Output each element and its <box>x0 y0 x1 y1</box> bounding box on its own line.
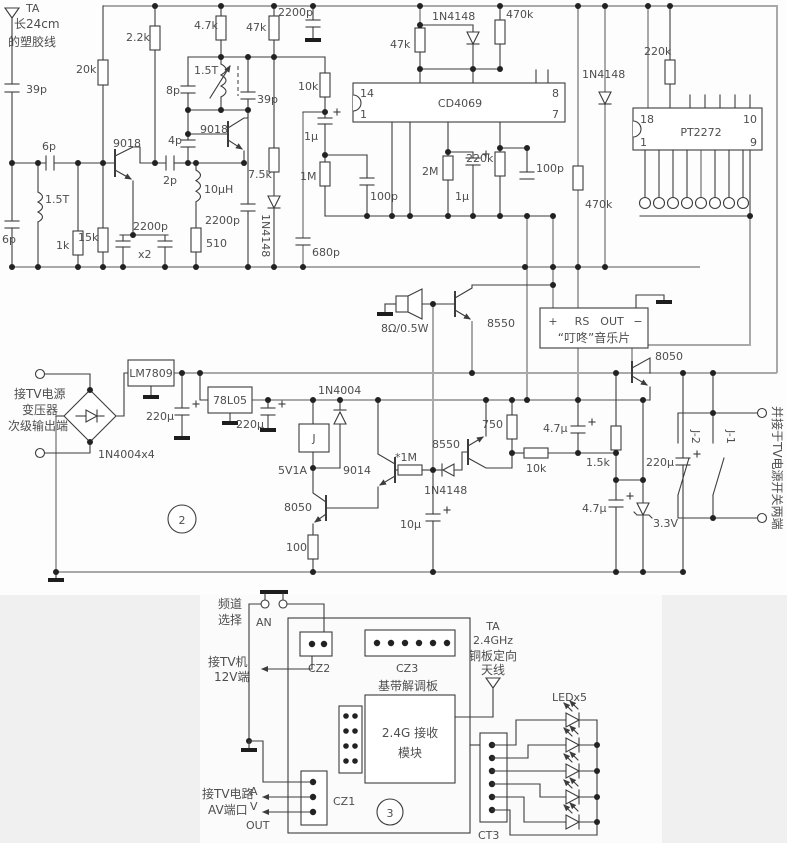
label-ct3: CT3 <box>478 829 499 842</box>
ic-pt2272-pin10: 10 <box>743 113 757 126</box>
label-1k: 1k <box>56 239 70 252</box>
label-out: OUT <box>246 819 270 832</box>
label-bridge: 1N4004x4 <box>98 448 155 461</box>
label-section2-num: 2 <box>179 514 186 527</box>
label-2k2: 2.2k <box>126 31 150 44</box>
label-1m-star: *1M <box>395 451 417 464</box>
label-channel-1: 频道 <box>218 597 242 611</box>
label-ant-wire: 的塑胶线 <box>8 34 56 49</box>
label-q9018-2: 9018 <box>200 123 228 136</box>
circle-2: 2 <box>168 505 196 533</box>
label-220u-b: 220µ <box>236 418 264 431</box>
label-av-1: 接TV电路 <box>202 786 254 801</box>
label-680p: 680p <box>312 246 340 259</box>
music-pin-rs: RS <box>575 315 590 328</box>
label-100: 100 <box>286 541 307 554</box>
label-a: A <box>250 785 258 798</box>
label-510: 510 <box>206 237 227 250</box>
label-ta1: TA <box>25 2 40 15</box>
label-1n4004: 1N4004 <box>318 384 361 397</box>
label-antenna-word: 天线 <box>481 663 505 677</box>
label-10u: 10µ <box>400 518 421 531</box>
label-2m: 2M <box>422 165 439 178</box>
label-speaker: 8Ω/0.5W <box>381 322 429 335</box>
label-1u-a: 1µ <box>304 130 318 143</box>
label-220u-a: 220µ <box>146 410 174 423</box>
label-1n4148-b: 1N4148 <box>432 10 475 23</box>
label-6p-b: 6p <box>2 233 16 246</box>
ic-pt2272-pin1: 1 <box>640 136 647 149</box>
music-chip-name: “叮咚”音乐片 <box>558 330 630 345</box>
label-q9018-1: 9018 <box>113 137 141 150</box>
label-relay-rating: 5V1A <box>278 464 308 477</box>
label-47k-a: 47k <box>246 21 267 34</box>
label-x2: x2 <box>138 248 152 261</box>
label-1n4148-d: 1N4148 <box>424 484 467 497</box>
label-8p: 8p <box>166 84 180 97</box>
label-ant-len: 长24cm <box>14 17 60 31</box>
circuit-schematic-page: TA 长24cm 的塑胶线 39p 6p 6p 1.5T 1k 20k 15k <box>0 0 787 843</box>
label-20k: 20k <box>76 63 97 76</box>
label-ledx5: LEDx5 <box>552 691 587 704</box>
label-cz3: CZ3 <box>396 662 418 675</box>
label-4k7: 4.7k <box>194 19 218 32</box>
label-module-1: 2.4G 接收 <box>382 725 438 740</box>
label-100p-a: 100p <box>370 190 398 203</box>
label-220k-a: 220k <box>466 152 494 165</box>
label-1n4148-a: 1N4148 <box>259 214 272 257</box>
ic-pt2272-name: PT2272 <box>680 126 721 139</box>
label-6p-a: 6p <box>42 140 56 153</box>
label-v: V <box>250 800 258 813</box>
label-100p-b: 100p <box>536 162 564 175</box>
music-pin-plus: + <box>548 315 557 328</box>
circuit-schematic: TA 长24cm 的塑胶线 39p 6p 6p 1.5T 1k 20k 15k <box>0 0 787 843</box>
ic-cd4069-pin7: 7 <box>552 108 559 121</box>
label-7k5: 7.5k <box>248 168 272 181</box>
label-1n4148-c: 1N4148 <box>582 68 625 81</box>
label-lm7809: LM7809 <box>129 367 173 380</box>
label-j2: J-2 <box>689 429 702 444</box>
label-8050-left: 8050 <box>284 501 312 514</box>
label-in3: 次级输出端 <box>8 418 68 433</box>
label-47k-b: 47k <box>390 38 411 51</box>
label-15k: 15k <box>78 231 99 244</box>
label-10uh: 10µH <box>204 183 233 196</box>
label-10k-a: 10k <box>298 80 319 93</box>
label-q8550-music: 8550 <box>487 317 515 330</box>
label-8550-b: 8550 <box>432 438 460 451</box>
label-9014: 9014 <box>343 464 371 477</box>
label-39p-a: 39p <box>26 83 47 96</box>
label-4u7-a: 4.7µ <box>543 422 568 435</box>
label-ta2: TA <box>485 620 500 633</box>
label-470k-a: 470k <box>506 8 534 21</box>
label-copper: 铜板定向 <box>469 648 517 663</box>
label-an: AN <box>256 616 272 629</box>
label-220k-b: 220k <box>644 45 672 58</box>
ic-cd4069-pin8: 8 <box>552 87 559 100</box>
label-470k-b: 470k <box>585 198 613 211</box>
label-zener-3v3: 3.3V <box>653 517 678 530</box>
label-2p: 2p <box>163 174 177 187</box>
label-tv12-2: 12V端 <box>214 670 249 684</box>
label-1k5: 1.5k <box>586 456 610 469</box>
ic-cd4069-name: CD4069 <box>438 97 482 110</box>
label-switch-note: 并接于TV电源开关两端 <box>770 406 785 530</box>
label-av-2: AV端口 <box>208 803 248 817</box>
ic-pt2272-pin9: 9 <box>750 136 757 149</box>
label-board-name: 基带解调板 <box>378 679 438 693</box>
label-module-2: 模块 <box>398 746 422 760</box>
label-2200p-b: 2200p <box>205 214 240 227</box>
label-cz1: CZ1 <box>333 795 355 808</box>
label-2200p-c: 2200p <box>278 6 313 19</box>
label-tv12-1: 接TV机 <box>208 654 248 669</box>
label-1p5t-a: 1.5T <box>45 193 69 206</box>
label-2200p-x2: 2200p <box>133 220 168 233</box>
label-39p-b: 39p <box>257 93 278 106</box>
label-2g4hz: 2.4GHz <box>473 634 513 647</box>
label-750: 750 <box>482 418 503 431</box>
label-8050-right: 8050 <box>655 350 683 363</box>
label-220u-c: 220µ <box>646 456 674 469</box>
ic-cd4069-pin1: 1 <box>360 108 367 121</box>
label-in1: 接TV电源 <box>14 386 66 401</box>
music-pin-out: OUT <box>600 315 624 328</box>
label-1p5t-b: 1.5T <box>194 64 218 77</box>
music-pin-minus: − <box>633 315 642 328</box>
label-in2: 变压器 <box>22 402 58 417</box>
label-4p: 4p <box>168 134 182 147</box>
label-j1: J-1 <box>724 429 737 444</box>
label-section3-num: 3 <box>387 807 394 820</box>
ic-cd4069-pin14: 14 <box>360 87 374 100</box>
circle-3: 3 <box>377 799 403 825</box>
label-channel-2: 选择 <box>218 613 242 627</box>
label-10k-b: 10k <box>526 462 547 475</box>
label-1u-b: 1µ <box>455 190 469 203</box>
label-78l05: 78L05 <box>213 394 247 407</box>
label-4u7-b: 4.7µ <box>582 502 607 515</box>
label-relay-j: J <box>311 432 315 445</box>
ic-pt2272-pin18: 18 <box>640 113 654 126</box>
module-2g4: 2.4G 接收 模块 <box>339 695 455 783</box>
label-1m: 1M <box>300 170 317 183</box>
